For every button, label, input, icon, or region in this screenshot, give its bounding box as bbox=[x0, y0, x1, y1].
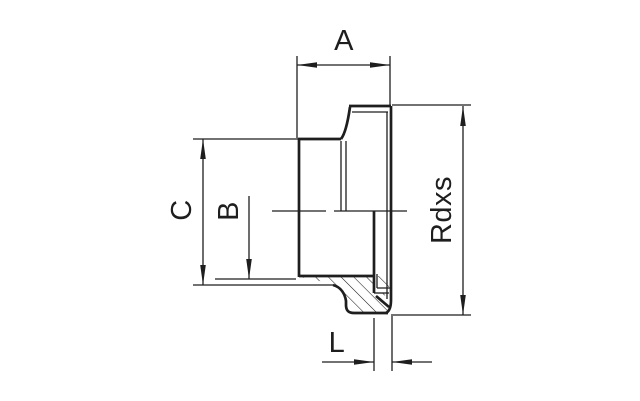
dimension-label-rdxs: Rdxs bbox=[426, 176, 458, 244]
dimension-l: L bbox=[322, 316, 432, 371]
section-hatching bbox=[300, 276, 389, 312]
dimension-label-c: C bbox=[166, 199, 198, 220]
dimension-rdxs: Rdxs bbox=[391, 105, 471, 315]
dimension-label-a: A bbox=[334, 25, 354, 57]
arrowhead-a-right bbox=[370, 62, 390, 68]
dimension-label-l: L bbox=[329, 327, 346, 359]
arrowhead-c-bottom bbox=[200, 265, 206, 285]
dimension-b: B bbox=[213, 196, 252, 279]
arrowhead-l-right bbox=[392, 359, 412, 365]
arrowhead-a-left bbox=[297, 62, 317, 68]
technical-drawing-canvas: A C B Rdxs bbox=[0, 0, 640, 401]
arrowhead-rdxs-top bbox=[460, 106, 466, 126]
arrowhead-b bbox=[246, 259, 252, 279]
dimension-a: A bbox=[297, 25, 390, 138]
fitting-diagram: A C B Rdxs bbox=[0, 0, 640, 401]
arrowhead-rdxs-bottom bbox=[460, 295, 466, 315]
arrowhead-c-top bbox=[200, 139, 206, 159]
arrowhead-l-left bbox=[354, 359, 374, 365]
dimension-label-b: B bbox=[213, 201, 245, 221]
